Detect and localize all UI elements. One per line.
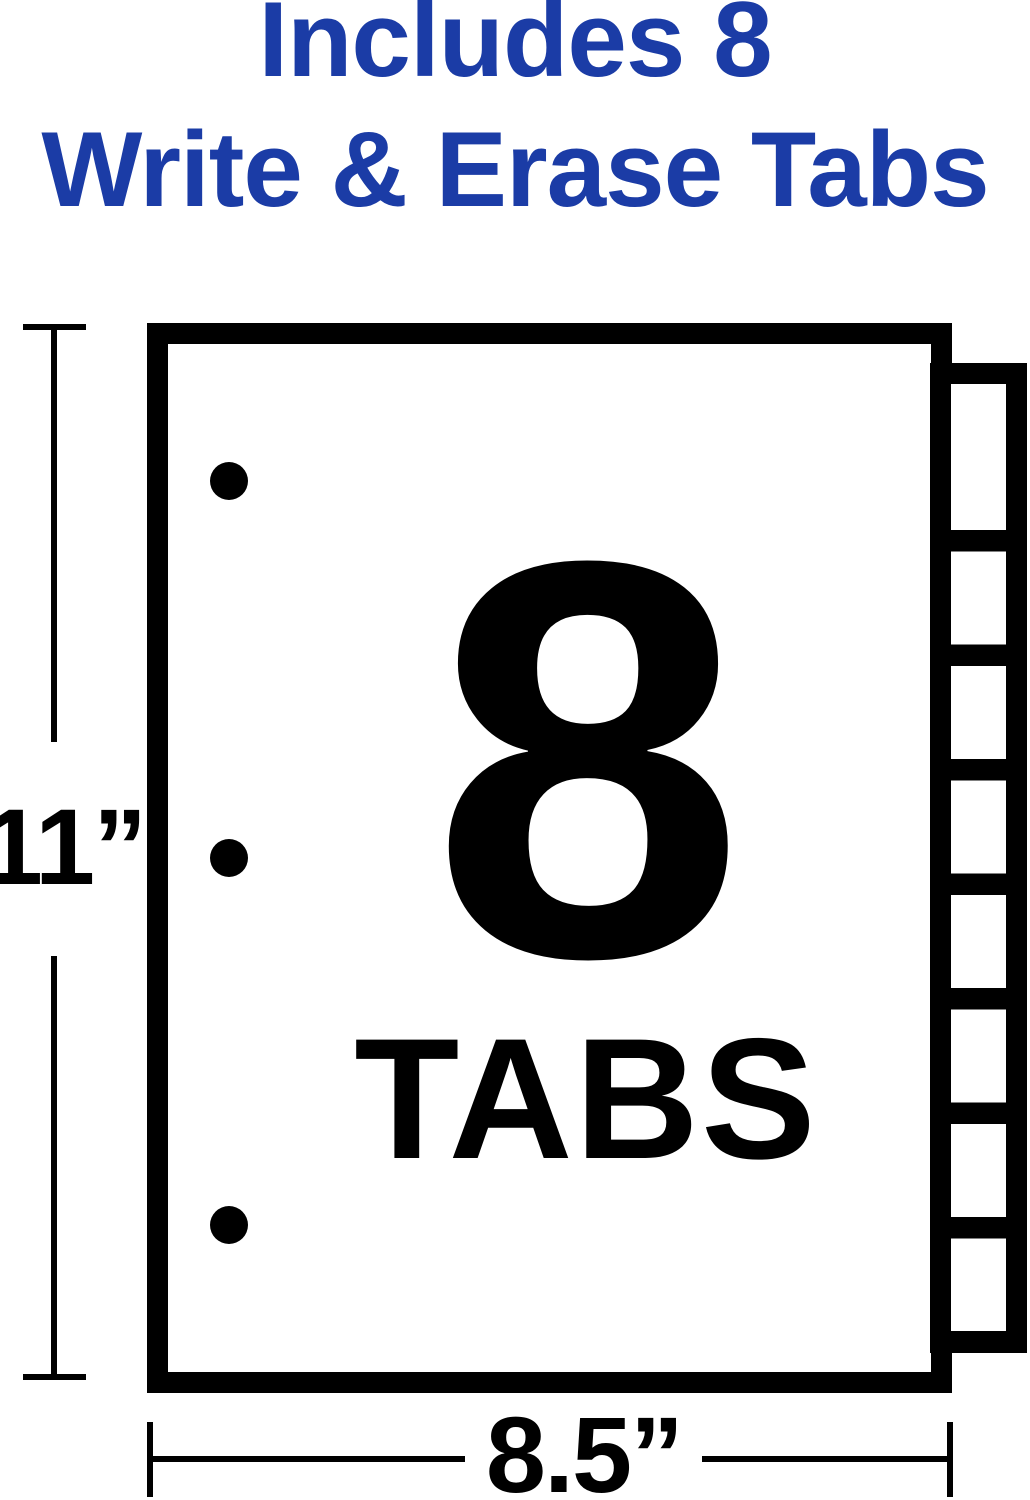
punch-hole-bottom xyxy=(210,1206,248,1244)
tab-slot-2 xyxy=(951,552,1006,645)
width-dimension-label: 8.5” xyxy=(486,1394,682,1500)
tab-slot-4 xyxy=(951,781,1006,874)
width-dimension: 8.5” xyxy=(147,1394,950,1500)
tab-slot-6 xyxy=(951,1010,1006,1103)
height-dimension-label: 11” xyxy=(0,786,145,907)
height-dimension: 11” xyxy=(0,324,145,1380)
divider-sheet-diagram: 8 TABS 11” 8.5” xyxy=(0,0,1030,1500)
tab-slot-5 xyxy=(951,895,1006,988)
tab-slot-7 xyxy=(951,1124,1006,1217)
product-image: Includes 8 Write & Erase Tabs 8 TABS xyxy=(0,0,1030,1500)
tab-slot-3 xyxy=(951,666,1006,759)
tab-slot-8 xyxy=(951,1239,1006,1332)
tab-strip xyxy=(930,363,1027,1353)
tab-count-number: 8 xyxy=(431,444,745,1075)
punch-hole-middle xyxy=(210,839,248,877)
punch-hole-top xyxy=(210,462,248,500)
tabs-label: TABS xyxy=(354,1003,817,1195)
tab-slot-1 xyxy=(951,384,1006,530)
